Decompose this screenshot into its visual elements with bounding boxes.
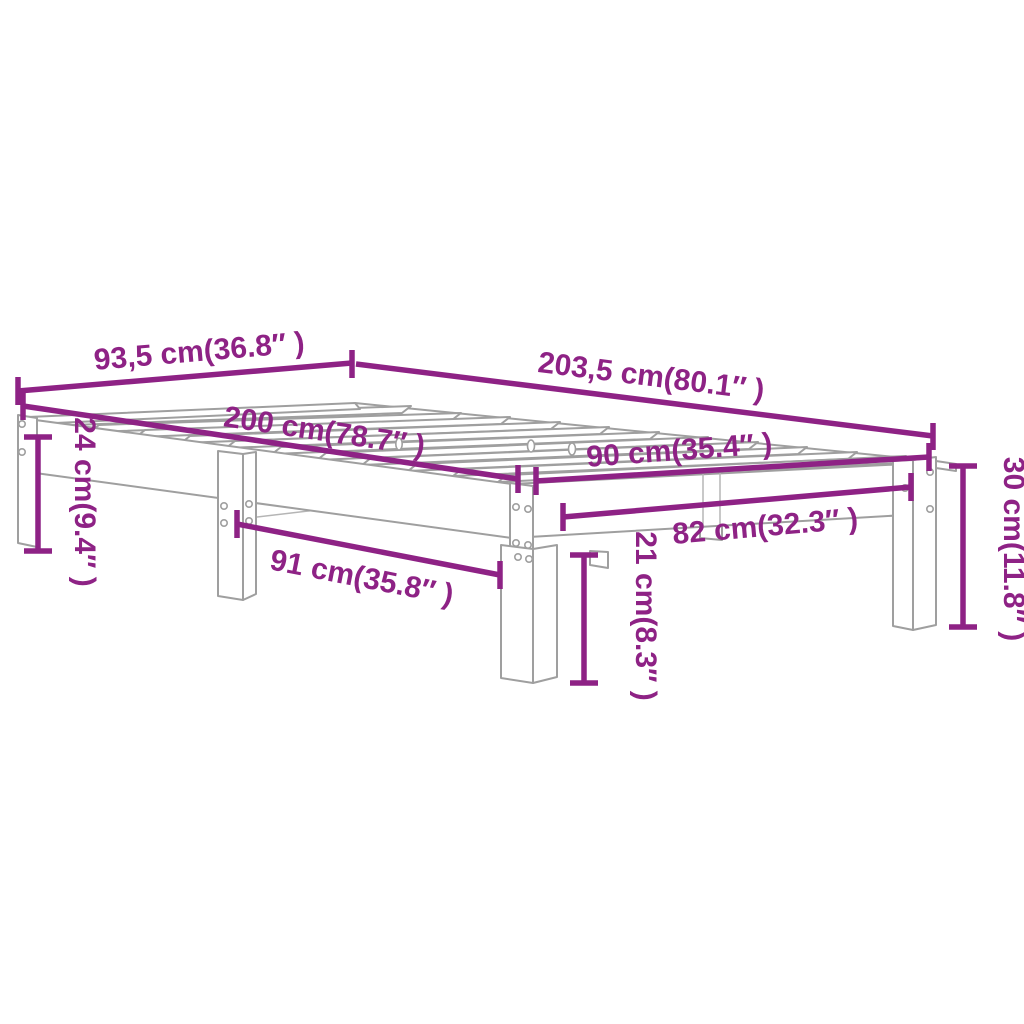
dim-underbed-clearance xyxy=(570,555,598,683)
screw xyxy=(525,542,531,548)
screw xyxy=(246,501,252,507)
center-leg-side xyxy=(533,545,557,683)
bed-frame xyxy=(18,403,956,683)
center-leg-front xyxy=(501,545,533,683)
screw xyxy=(221,503,227,509)
screw xyxy=(221,520,227,526)
screw xyxy=(19,421,25,427)
screw xyxy=(927,506,933,512)
label-leg-span-length: 91 cm(35.8″ ) xyxy=(267,544,456,612)
diagram-canvas: 93,5 cm(36.8″ ) 203,5 cm(80.1″ ) 200 cm(… xyxy=(0,0,1024,1024)
screw xyxy=(515,554,521,560)
right-leg-side xyxy=(913,457,936,630)
rail-hole xyxy=(569,443,576,455)
screw xyxy=(525,506,531,512)
label-total-height: 30 cm(11.8″ ) xyxy=(997,457,1024,641)
dim-total-height xyxy=(949,466,977,627)
label-overall-length: 203,5 cm(80.1″ ) xyxy=(536,346,766,407)
screw xyxy=(526,556,532,562)
bed-frame-dimension-diagram: 93,5 cm(36.8″ ) 203,5 cm(80.1″ ) 200 cm(… xyxy=(0,0,1024,1024)
screw xyxy=(513,504,519,510)
label-underbed-clearance: 21 cm(8.3″ ) xyxy=(629,531,662,700)
label-left-height: 24 cm(9.4″ ) xyxy=(68,417,101,586)
screw xyxy=(513,540,519,546)
screw xyxy=(19,449,25,455)
rail-hole xyxy=(528,440,535,452)
